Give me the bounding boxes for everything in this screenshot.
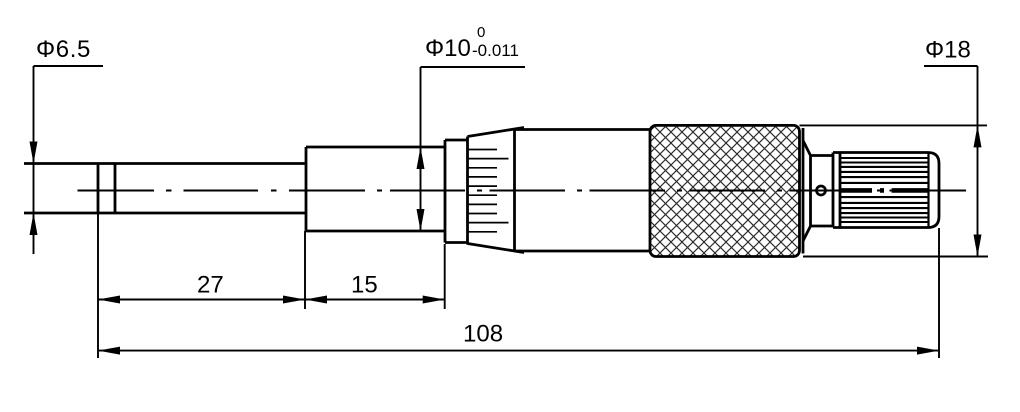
svg-text:Φ18: Φ18 [925, 37, 971, 64]
svg-text:0: 0 [477, 24, 485, 41]
svg-text:27: 27 [197, 272, 224, 299]
svg-text:108: 108 [463, 321, 503, 348]
svg-text:-0.011: -0.011 [472, 41, 519, 60]
svg-text:Φ10: Φ10 [425, 35, 471, 62]
svg-text:Φ6.5: Φ6.5 [36, 36, 91, 63]
svg-text:15: 15 [351, 272, 378, 299]
